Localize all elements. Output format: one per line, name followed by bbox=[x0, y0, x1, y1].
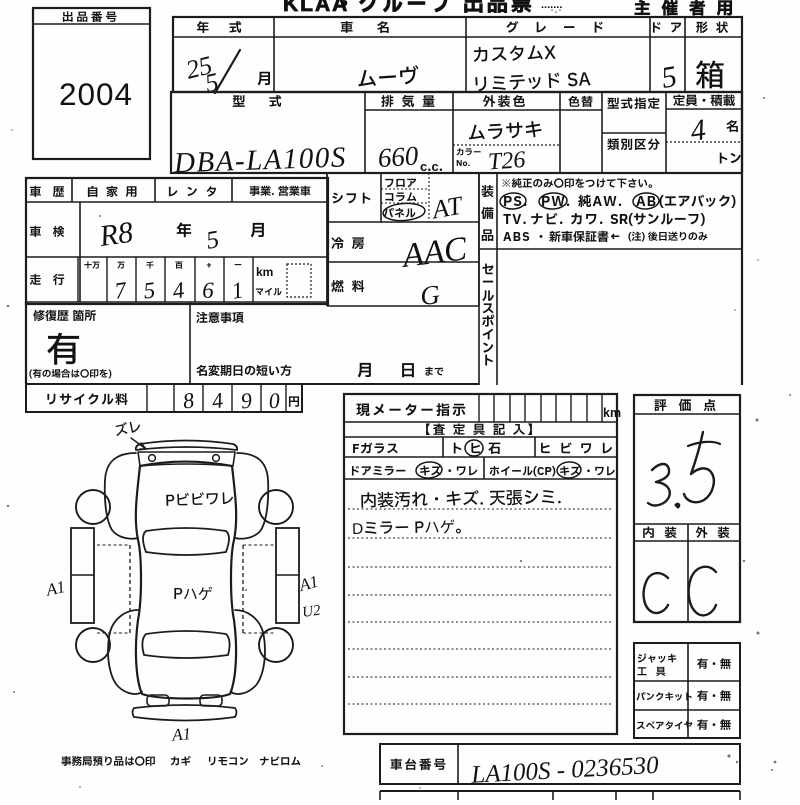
svg-text:型 式: 型 式 bbox=[232, 92, 292, 112]
svg-text:6: 6 bbox=[202, 278, 214, 303]
svg-text:燃 料: 燃 料 bbox=[331, 277, 367, 297]
svg-text:・ワレ: ・ワレ bbox=[583, 463, 616, 480]
svg-text:ト: ト bbox=[450, 439, 463, 459]
svg-text:セールスポイント: セールスポイント bbox=[478, 262, 498, 366]
svg-text:660: 660 bbox=[377, 140, 420, 173]
svg-text:ムラサキ: ムラサキ bbox=[466, 117, 543, 149]
svg-text:U2: U2 bbox=[301, 603, 322, 621]
svg-text:km: km bbox=[256, 264, 273, 282]
svg-text:自 家 用: 自 家 用 bbox=[87, 184, 140, 202]
svg-text:(エアバック): (エアバック) bbox=[659, 192, 736, 212]
svg-text:Fガラス: Fガラス bbox=[352, 440, 399, 459]
svg-text:年: 年 bbox=[176, 220, 192, 244]
svg-text:年 式: 年 式 bbox=[196, 18, 250, 38]
svg-text:冷 房: 冷 房 bbox=[331, 234, 367, 254]
svg-text:・ワレ: ・ワレ bbox=[444, 464, 479, 481]
svg-text:ホイール(CP): ホイール(CP) bbox=[489, 463, 556, 480]
svg-text:グ レ ー ド: グ レ ー ド bbox=[506, 18, 611, 38]
svg-text:走 行: 走 行 bbox=[29, 272, 68, 290]
svg-text:Dミラー Pハゲ。: Dミラー Pハゲ。 bbox=[352, 516, 471, 541]
svg-text:修復歴 箇所: 修復歴 箇所 bbox=[33, 308, 96, 326]
svg-text:事業. 営業車: 事業. 営業車 bbox=[249, 183, 311, 200]
svg-text:レ ン タ: レ ン タ bbox=[167, 184, 220, 202]
svg-text:km: km bbox=[603, 404, 621, 423]
svg-text:パンクキット: パンクキット bbox=[636, 691, 693, 705]
svg-text:月: 月 bbox=[257, 68, 272, 91]
svg-text:ド ア: ド ア bbox=[650, 19, 684, 38]
svg-text:ABS: ABS bbox=[503, 229, 531, 247]
svg-text:純AW.: 純AW. bbox=[578, 192, 623, 212]
svg-text:【査 定 具 記 入】: 【査 定 具 記 入】 bbox=[418, 421, 541, 440]
svg-text:No.: No. bbox=[456, 157, 470, 170]
svg-text:車 歴: 車 歴 bbox=[29, 184, 68, 202]
svg-text:まで: まで bbox=[424, 365, 444, 380]
svg-text:G: G bbox=[419, 279, 441, 311]
svg-text:ヒ ビ ワ レ: ヒ ビ ワ レ bbox=[539, 439, 616, 459]
svg-text:車 検: 車 検 bbox=[29, 224, 68, 242]
svg-text:カスタムX: カスタムX bbox=[472, 40, 557, 70]
svg-text:+: + bbox=[206, 258, 212, 272]
svg-text:T26: T26 bbox=[487, 147, 526, 176]
svg-text:R8: R8 bbox=[96, 216, 135, 253]
svg-text:車 名: 車 名 bbox=[340, 18, 400, 38]
svg-text:ドアミラー: ドアミラー bbox=[349, 464, 407, 481]
svg-text:装: 装 bbox=[481, 182, 494, 202]
svg-text:万: 万 bbox=[117, 260, 125, 272]
svg-text:類別区分: 類別区分 bbox=[607, 136, 661, 155]
svg-text:リモコン: リモコン bbox=[207, 754, 249, 770]
svg-text:DBA-LA100S: DBA-LA100S bbox=[173, 141, 348, 179]
svg-text:ナビロム: ナビロム bbox=[259, 754, 301, 770]
svg-text:(有の場合は〇印を): (有の場合は〇印を) bbox=[29, 368, 112, 382]
svg-text:内 装: 内 装 bbox=[642, 524, 679, 543]
svg-text:十万: 十万 bbox=[84, 260, 100, 272]
svg-text:車台番号: 車台番号 bbox=[390, 756, 448, 775]
svg-text:事務局預り品は〇印: 事務局預り品は〇印 bbox=[61, 754, 156, 770]
svg-text:月: 月 bbox=[250, 220, 266, 244]
svg-text:月: 月 bbox=[357, 360, 373, 384]
svg-text:評 価 点: 評 価 点 bbox=[654, 396, 720, 416]
svg-text:外 装: 外 装 bbox=[695, 524, 732, 543]
svg-text:−: − bbox=[233, 258, 242, 272]
svg-text:名変期日の短い方: 名変期日の短い方 bbox=[196, 363, 292, 381]
svg-text:Pビビワレ: Pビビワレ bbox=[165, 487, 236, 512]
svg-text:2004: 2004 bbox=[59, 76, 133, 112]
svg-text:シフト: シフト bbox=[331, 189, 373, 209]
svg-text:トン: トン bbox=[716, 149, 742, 169]
svg-text:0: 0 bbox=[268, 388, 281, 414]
svg-text:※純正のみ〇印をつけて下さい。: ※純正のみ〇印をつけて下さい。 bbox=[501, 176, 659, 192]
svg-text:日: 日 bbox=[400, 360, 416, 384]
svg-text:出品番号: 出品番号 bbox=[62, 10, 120, 27]
svg-text:千: 千 bbox=[146, 260, 154, 272]
svg-text:型式指定: 型式指定 bbox=[607, 95, 661, 114]
svg-text:Pハゲ: Pハゲ bbox=[173, 583, 213, 606]
svg-text:外装色: 外装色 bbox=[482, 92, 527, 112]
svg-text:名: 名 bbox=[726, 117, 739, 137]
svg-text:ナビ.: ナビ. bbox=[530, 210, 564, 230]
svg-text:排 気 量: 排 気 量 bbox=[381, 92, 437, 112]
svg-text:工 具: 工 具 bbox=[637, 665, 669, 680]
svg-text:円: 円 bbox=[288, 394, 300, 412]
svg-text:新車保証書←: 新車保証書← bbox=[549, 229, 621, 247]
svg-text:有・無: 有・無 bbox=[697, 689, 732, 706]
svg-text:リサイクル料: リサイクル料 bbox=[45, 390, 129, 410]
svg-text:A1: A1 bbox=[170, 724, 191, 745]
svg-text:c.c.: c.c. bbox=[420, 157, 443, 177]
svg-text:カギ: カギ bbox=[170, 754, 191, 770]
svg-text:形 状: 形 状 bbox=[696, 19, 730, 38]
svg-text:色替: 色替 bbox=[568, 94, 594, 112]
svg-text:SR(サンルーフ): SR(サンルーフ) bbox=[610, 210, 706, 230]
svg-text:有・無: 有・無 bbox=[697, 718, 732, 735]
svg-text:TV.: TV. bbox=[503, 210, 528, 230]
svg-text:マイル: マイル bbox=[255, 285, 282, 299]
svg-text:内装汚れ・キズ. 天張シミ.: 内装汚れ・キズ. 天張シミ. bbox=[360, 486, 562, 515]
svg-text:スペアタイヤ: スペアタイヤ bbox=[636, 720, 693, 734]
svg-text:有・無: 有・無 bbox=[697, 657, 732, 674]
svg-text:カワ.: カワ. bbox=[570, 210, 604, 230]
svg-text:石: 石 bbox=[488, 439, 501, 459]
svg-text:定員・積載: 定員・積載 bbox=[673, 92, 736, 111]
svg-text:現メーター指示: 現メーター指示 bbox=[356, 401, 468, 422]
svg-text:A1: A1 bbox=[44, 577, 67, 600]
svg-text:・: ・ bbox=[535, 229, 547, 247]
svg-text:備: 備 bbox=[481, 204, 494, 224]
svg-text:百: 百 bbox=[175, 260, 183, 272]
svg-text:注意事項: 注意事項 bbox=[196, 310, 244, 328]
svg-text:(注) 後日送りのみ: (注) 後日送りのみ bbox=[628, 230, 708, 245]
svg-text:品: 品 bbox=[481, 226, 494, 246]
